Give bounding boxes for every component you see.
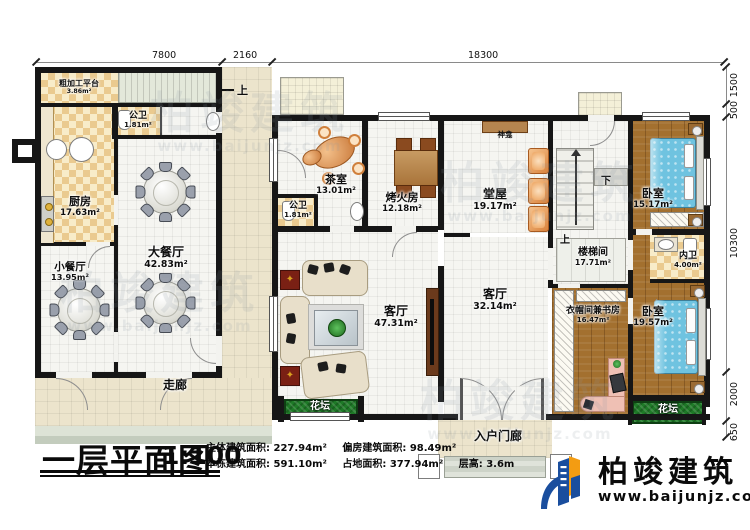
room-label-bedroom-top: 卧室15.17m² bbox=[622, 188, 684, 211]
dim-right-4: 2000 bbox=[729, 382, 740, 406]
nightstand-icon bbox=[690, 381, 705, 393]
side-table-icon: ✦ bbox=[280, 270, 300, 290]
sink-icon bbox=[658, 239, 674, 250]
room-label-bedroom-bottom: 卧室19.57m² bbox=[622, 306, 684, 329]
round-table-icon bbox=[133, 271, 197, 335]
dim-right-3: 10300 bbox=[729, 228, 740, 258]
door-opening bbox=[548, 248, 553, 280]
kitchen-sink-icon bbox=[69, 137, 94, 162]
room-label-stair: 楼梯间17.71m² bbox=[562, 247, 624, 267]
wall bbox=[628, 401, 632, 425]
wardrobe-icon bbox=[576, 290, 626, 302]
dim-line-top bbox=[36, 62, 724, 63]
plant-icon bbox=[328, 319, 346, 337]
desk-set-icon bbox=[580, 358, 628, 414]
round-table-icon bbox=[47, 278, 111, 342]
stair-landing bbox=[594, 168, 628, 186]
window bbox=[378, 112, 430, 121]
door-opening bbox=[216, 336, 222, 366]
stat-value: 591.10m² bbox=[273, 459, 326, 470]
door-opening bbox=[392, 226, 416, 232]
nightstand-icon bbox=[690, 285, 705, 297]
window bbox=[642, 112, 690, 121]
title-underline bbox=[40, 470, 220, 473]
stat-label: 偏房建筑面积: bbox=[342, 443, 406, 454]
kitchen-sink-icon bbox=[46, 139, 67, 160]
staircase bbox=[556, 148, 594, 230]
tv-cabinet-icon bbox=[426, 288, 439, 376]
sofa-set-icon: ✦ ✦ bbox=[278, 258, 370, 406]
side-table-icon: ✦ bbox=[280, 366, 300, 386]
armchair-icon bbox=[528, 148, 549, 174]
stairs-down-label: 下 bbox=[601, 172, 611, 187]
stat-value: 377.94m² bbox=[390, 459, 443, 470]
dim-right-1: 1500 bbox=[729, 73, 740, 97]
wall bbox=[160, 106, 162, 135]
door-opening bbox=[114, 195, 118, 225]
room-label-living-main: 客厅47.31m² bbox=[364, 305, 428, 330]
room-label-prep: 粗加工平台3.86m² bbox=[44, 79, 114, 95]
up-arrow-icon bbox=[221, 89, 234, 91]
door-opening bbox=[558, 284, 580, 288]
label-flowerbed-right: 花坛 bbox=[640, 404, 696, 416]
stairs-up-label: 上 bbox=[560, 231, 570, 246]
wall bbox=[702, 401, 706, 425]
label-flowerbed-left: 花坛 bbox=[292, 401, 348, 413]
dim-top-3: 18300 bbox=[468, 50, 498, 61]
armchair-icon bbox=[528, 206, 549, 232]
room-label-kitchen: 厨房17.63m² bbox=[48, 196, 112, 219]
nightstand-icon bbox=[688, 123, 703, 135]
window bbox=[269, 296, 278, 352]
wall bbox=[628, 395, 710, 401]
room-label-wc-main: 公卫1.81m² bbox=[278, 201, 318, 219]
brand-logo: 柏竣建筑 www.baijunjz.com bbox=[538, 452, 750, 510]
plant-icon bbox=[613, 360, 621, 368]
outdoor-platform-stair bbox=[578, 92, 622, 116]
wall bbox=[650, 279, 704, 283]
sink-icon bbox=[206, 112, 220, 131]
nightstand-icon bbox=[688, 214, 703, 226]
tv-icon bbox=[430, 299, 434, 365]
shrine-shelf: 神龛 bbox=[482, 121, 528, 133]
brand-logo-icon bbox=[538, 452, 590, 510]
dim-line-right bbox=[726, 67, 727, 437]
title-underline bbox=[40, 475, 220, 477]
door-opening bbox=[56, 372, 92, 378]
dim-top-2: 2160 bbox=[233, 50, 257, 61]
wall bbox=[35, 67, 222, 73]
walkway bbox=[222, 67, 272, 428]
shrine-label: 神龛 bbox=[498, 130, 513, 139]
hall-strip bbox=[632, 229, 650, 283]
door-opening bbox=[636, 229, 652, 235]
plan-stats: 主体建筑面积: 227.94m² 偏房建筑面积: 98.49m² 本栋建筑面积:… bbox=[206, 441, 536, 473]
door-opening bbox=[114, 332, 118, 362]
stat-value: 3.6m bbox=[486, 459, 514, 470]
armchair-icon bbox=[528, 178, 549, 204]
brand-site: www.baijunjz.com bbox=[598, 489, 750, 505]
stairs-arrow-icon bbox=[571, 149, 581, 156]
room-label-hall: 堂屋19.17m² bbox=[464, 188, 526, 213]
room-label-corridor: 走廊 bbox=[150, 379, 200, 393]
wall bbox=[444, 233, 470, 237]
stat-label: 层高: bbox=[459, 459, 483, 470]
stat-label: 主体建筑面积: bbox=[206, 443, 270, 454]
stat-value: 227.94m² bbox=[273, 443, 326, 454]
stat-label: 本栋建筑面积: bbox=[206, 459, 270, 470]
room-label-tea: 茶室13.01m² bbox=[308, 174, 364, 197]
dim-top-1: 7800 bbox=[152, 50, 176, 61]
room-label-ensuite: 内卫4.00m² bbox=[666, 251, 710, 269]
fire-table-icon bbox=[388, 138, 442, 196]
sink-icon bbox=[350, 202, 364, 221]
entry-steps-strip bbox=[118, 71, 222, 103]
room-label-fire: 烤火房12.18m² bbox=[370, 192, 434, 215]
dim-right-2: 500 bbox=[729, 101, 740, 119]
door-opening bbox=[628, 240, 633, 270]
window bbox=[290, 412, 350, 421]
door-opening bbox=[330, 226, 354, 232]
dim-right-5: 650 bbox=[729, 423, 740, 441]
room-label-living-entry: 客厅32.14m² bbox=[463, 288, 527, 313]
room-label-wc-left: 公卫1.81m² bbox=[118, 111, 158, 129]
stat-label: 占地面积: bbox=[342, 459, 386, 470]
entry-up-label: 上 bbox=[237, 82, 248, 98]
brand-name: 柏竣建筑 bbox=[598, 457, 750, 489]
floor-plan: 神龛 下 上 ✦ ✦ bbox=[0, 0, 750, 530]
wall bbox=[112, 135, 222, 139]
outdoor-platform-left bbox=[280, 77, 344, 115]
round-table-icon bbox=[133, 160, 197, 224]
wall bbox=[35, 103, 222, 107]
window bbox=[269, 138, 278, 182]
stat-value: 98.49m² bbox=[410, 443, 456, 454]
room-label-large-dining: 大餐厅42.83m² bbox=[133, 246, 199, 271]
room-label-small-dining: 小餐厅13.95m² bbox=[38, 261, 102, 282]
